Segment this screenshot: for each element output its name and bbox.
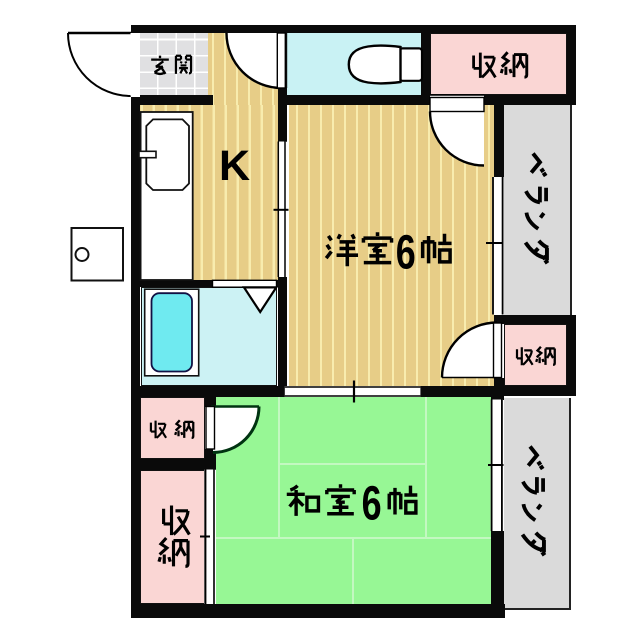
svg-text:6: 6 <box>362 478 382 531</box>
svg-text:6: 6 <box>396 227 416 280</box>
svg-text:K: K <box>219 142 250 190</box>
